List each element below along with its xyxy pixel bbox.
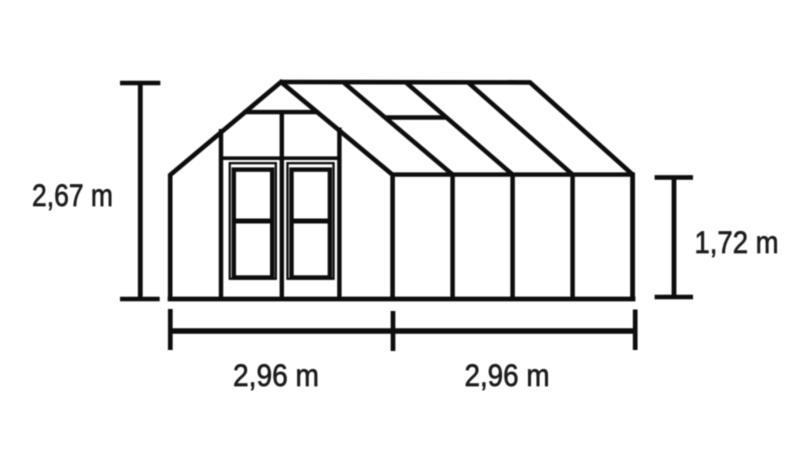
svg-text:2,67 m: 2,67 m [32, 177, 113, 213]
svg-text:2,96 m: 2,96 m [465, 357, 550, 393]
svg-text:1,72 m: 1,72 m [695, 224, 779, 260]
svg-text:2,96 m: 2,96 m [233, 357, 319, 393]
